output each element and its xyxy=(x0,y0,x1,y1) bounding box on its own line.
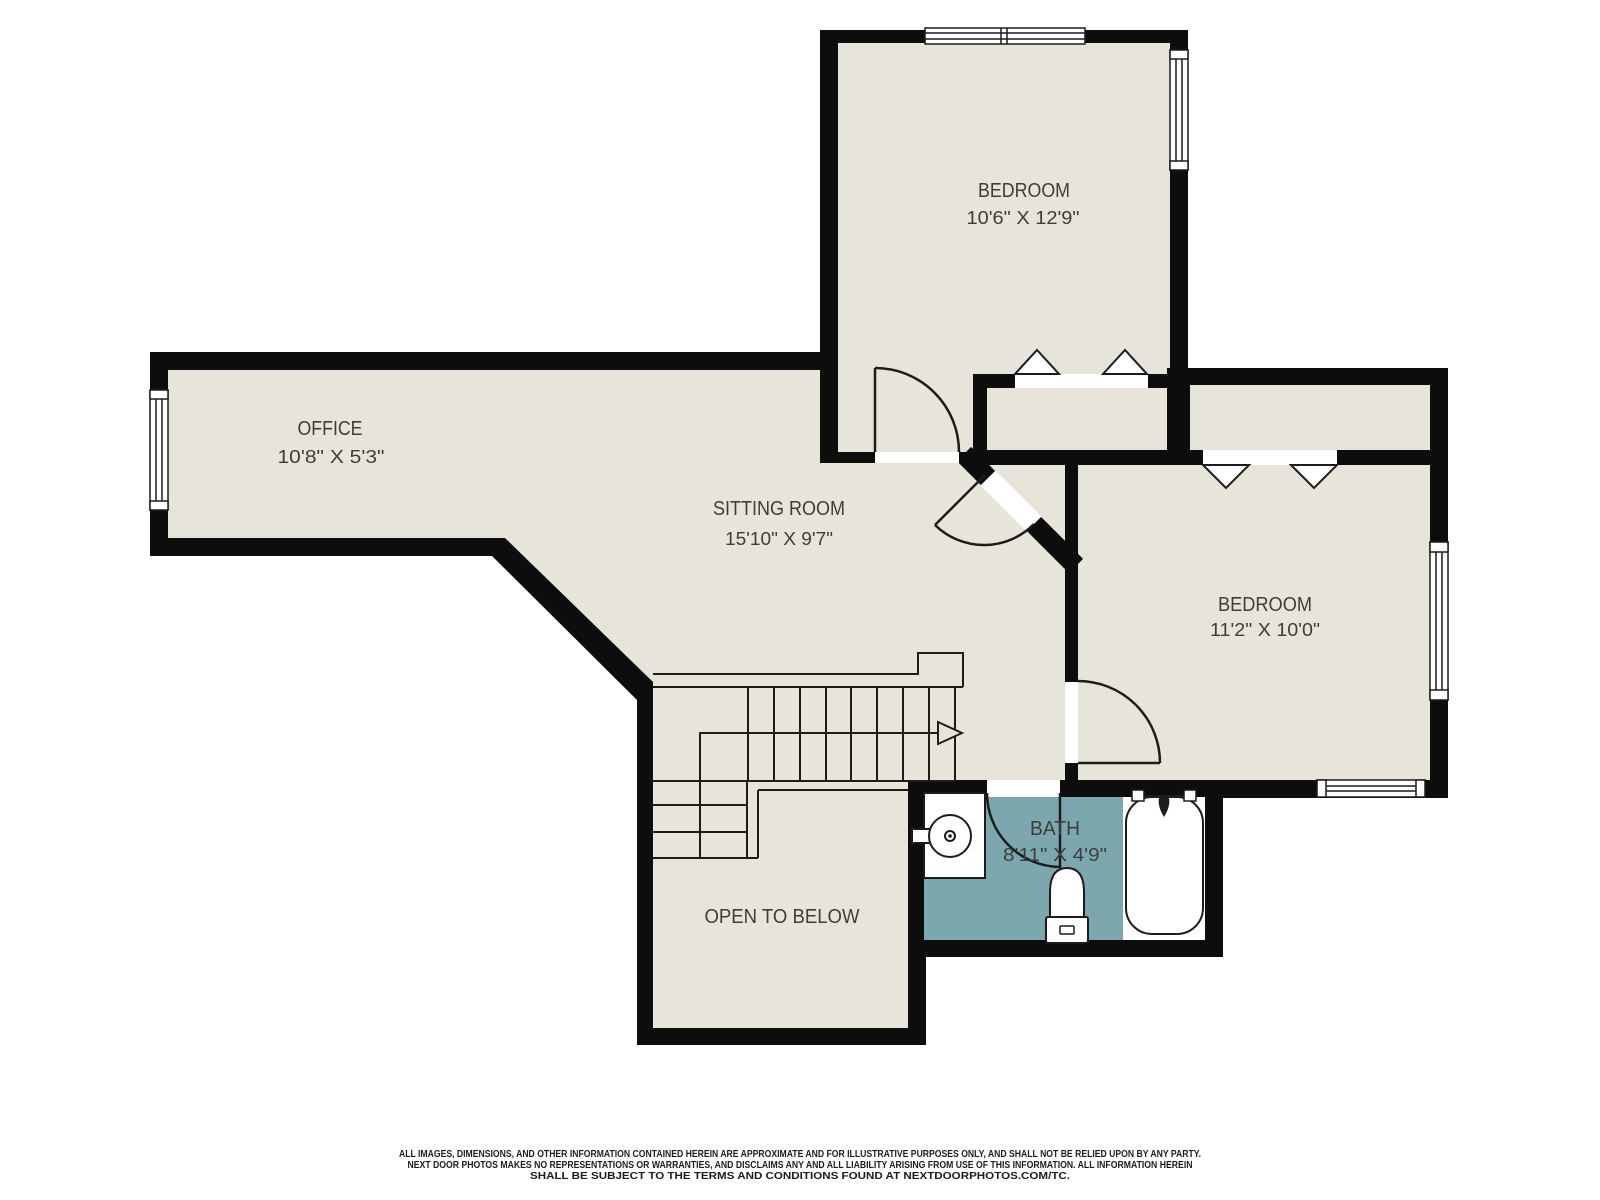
disclaimer-line-1: ALL IMAGES, DIMENSIONS, AND OTHER INFORM… xyxy=(399,1149,1201,1160)
opening-bath-door xyxy=(987,780,1060,797)
window-bedroomtop-top xyxy=(925,28,1085,44)
dims-bath: 8'11" X 4'9" xyxy=(1003,845,1107,865)
label-bedroom-top: BEDROOM xyxy=(978,180,1070,202)
opening-closet-bifold-right xyxy=(1203,450,1337,465)
opening-bedroomtop-door xyxy=(875,452,959,463)
floor-closet-right-strip xyxy=(1190,385,1430,452)
wall-bath-right xyxy=(1205,780,1223,957)
dims-sitting-room: 15'10" X 9'7" xyxy=(725,529,833,549)
dims-office: 10'8" X 5'3" xyxy=(278,447,385,467)
opening-bedroomright-door xyxy=(1065,682,1078,763)
wall-bedroomtop-left xyxy=(820,352,838,463)
floor-bedroom-top xyxy=(838,43,1170,452)
window-office-left xyxy=(150,390,168,510)
disclaimer: ALL IMAGES, DIMENSIONS, AND OTHER INFORM… xyxy=(399,1149,1201,1182)
floorplan-page: BEDROOM 10'6" X 12'9" OFFICE 10'8" X 5'3… xyxy=(0,0,1600,1200)
disclaimer-line-3: SHALL BE SUBJECT TO THE TERMS AND CONDIT… xyxy=(530,1171,1070,1182)
label-bedroom-right: BEDROOM xyxy=(1218,594,1312,616)
floorplan-svg: BEDROOM 10'6" X 12'9" OFFICE 10'8" X 5'3… xyxy=(0,0,1600,1200)
label-bath: BATH xyxy=(1030,818,1080,840)
dims-bedroom-right: 11'2" X 10'0" xyxy=(1210,620,1320,640)
label-sitting-room: SITTING ROOM xyxy=(713,498,845,520)
opening-closet-bifold-top xyxy=(1015,374,1148,388)
toilet-fixture xyxy=(1046,868,1088,943)
dims-bedroom-top: 10'6" X 12'9" xyxy=(967,208,1080,228)
disclaimer-line-2: NEXT DOOR PHOTOS MAKES NO REPRESENTATION… xyxy=(408,1160,1193,1171)
bathtub-fixture xyxy=(1126,790,1203,934)
label-open-to-below: OPEN TO BELOW xyxy=(705,906,860,928)
window-bedroomtop-right xyxy=(1170,50,1188,170)
label-office: OFFICE xyxy=(298,418,363,440)
window-bedroomright-bottom xyxy=(1317,780,1425,797)
window-bedroomright-right xyxy=(1430,542,1448,700)
wall-openbelow-right xyxy=(908,780,924,1045)
